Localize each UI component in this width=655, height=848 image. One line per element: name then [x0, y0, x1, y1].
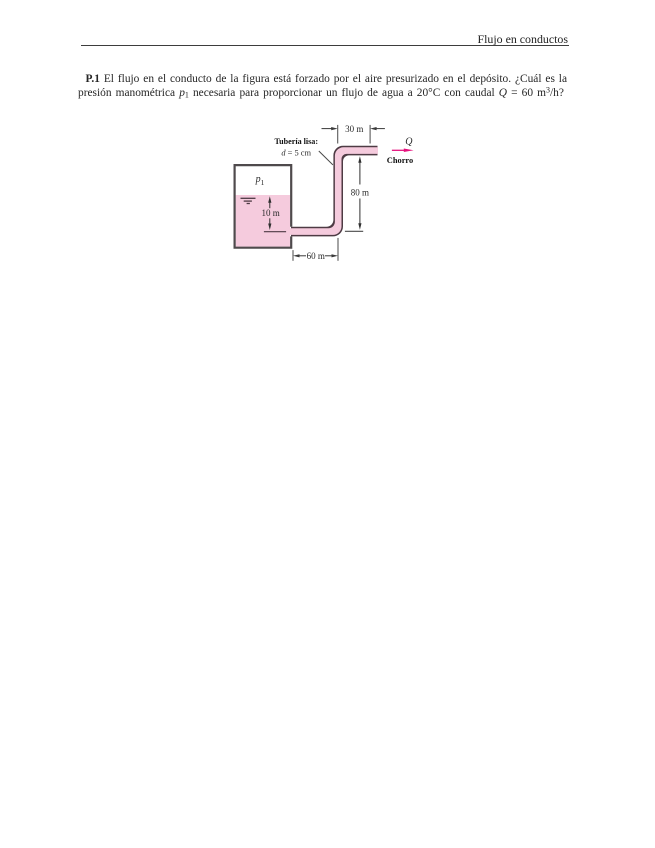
- svg-text:Chorro: Chorro: [387, 156, 413, 165]
- svg-text:30 m: 30 m: [345, 124, 363, 134]
- svg-text:d = 5 cm: d = 5 cm: [281, 149, 311, 158]
- svg-text:10 m: 10 m: [261, 208, 279, 218]
- svg-text:60 m: 60 m: [307, 251, 325, 261]
- svg-text:80 m: 80 m: [351, 187, 369, 197]
- svg-text:p1: p1: [255, 174, 265, 187]
- svg-text:Tubería lisa:: Tubería lisa:: [275, 137, 319, 146]
- svg-text:Q: Q: [405, 137, 413, 148]
